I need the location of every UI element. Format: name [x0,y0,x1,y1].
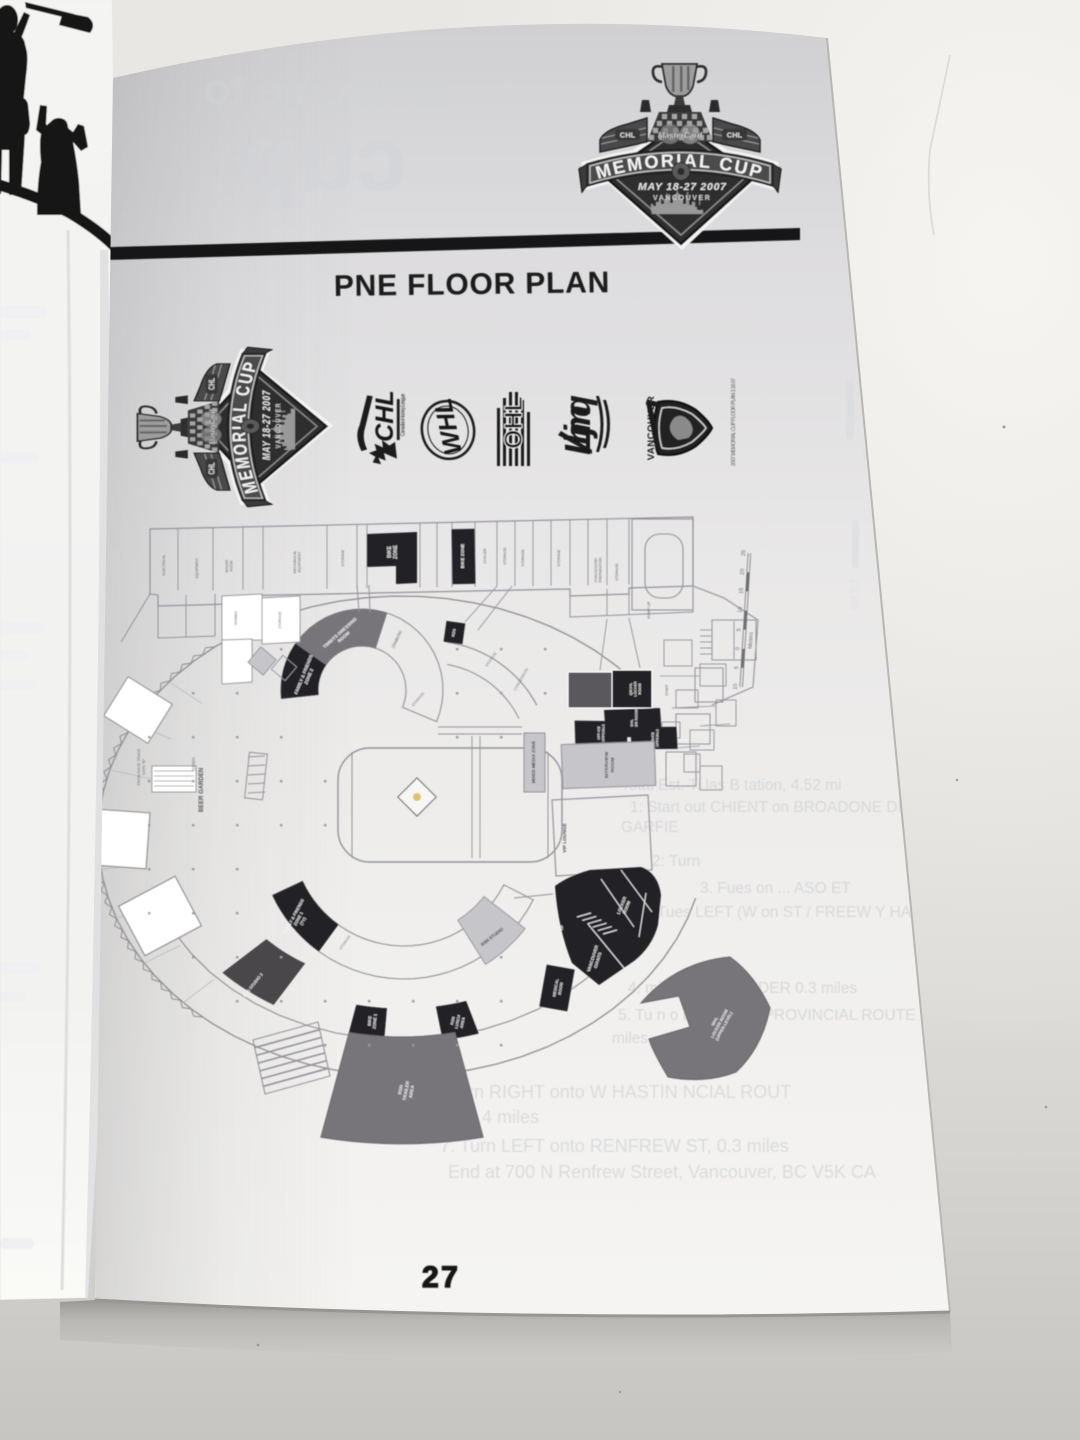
svg-text:OHL: OHL [500,396,528,449]
svg-text:STORAGE: STORAGE [341,549,345,567]
svg-text:Lhjmq: Lhjmq [557,395,598,455]
svg-text:ELECTRICAL: ELECTRICAL [162,554,166,575]
svg-text:5. Tu n o BURRARD P: 5. Tu n o BURRARD PROVINCIAL ROUTE 7A, 0… [618,1007,960,1024]
svg-text:STORAGE: STORAGE [521,549,525,567]
svg-text:STORAGE: STORAGE [557,549,561,567]
svg-text:STAFF: STAFF [665,683,669,695]
svg-text:CHL: CHL [371,390,399,442]
svg-text:STORAGE: STORAGE [278,611,282,629]
svg-text:on ST: on ST [847,577,862,610]
svg-text:25: 25 [741,550,747,556]
svg-text:BEER GARDEN: BEER GARDEN [199,768,205,812]
svg-text:Welcome to: Welcome to [204,65,450,114]
svg-text:3. Fues on ... ASO ET: 3. Fues on ... ASO ET [700,880,851,897]
svg-text:10: 10 [737,607,743,613]
svg-text:VIP LOUNGE: VIP LOUNGE [562,822,568,852]
svg-text:RAMP UP: RAMP UP [647,601,651,619]
svg-text:0: 0 [735,647,741,650]
svg-text:MIXED MEDIA ZONE: MIXED MEDIA ZONE [531,741,536,784]
svg-text:STORAGE: STORAGE [503,547,507,565]
svg-text:BIKEZONE: BIKEZONE [387,544,399,559]
svg-text:5: 5 [734,666,740,669]
svg-text:End at 700 N Renfrew Street, V: End at 700 N Renfrew Street, Vancouver, … [448,1162,876,1182]
svg-text:7. Turn LEFT onto RENFREW ST,: 7. Turn LEFT onto RENFREW ST, 0.3 miles [440,1136,789,1156]
svg-text:BIKE ZONE: BIKE ZONE [460,544,465,569]
svg-text:2: Turn: 2: Turn [652,853,700,870]
svg-text:CHILLER: CHILLER [483,548,487,564]
svg-text:10: 10 [733,683,739,689]
svg-text:27: 27 [422,1261,460,1294]
svg-text:15: 15 [739,588,745,594]
svg-text:DOWN: DOWN [191,757,196,770]
svg-text:6. Turn RIGHT onto W HASTIN: 6. Turn RIGHT onto W HASTIN NCIAL ROUT [428,1082,791,1102]
svg-text:cup: cup [243,108,407,210]
svg-text:PNE FLOOR PLAN: PNE FLOOR PLAN [334,266,611,303]
svg-text:WOMEN: WOMEN [234,611,238,626]
svg-text:miles: miles [612,1030,648,1047]
svg-text:Meters: Meters [748,632,755,649]
svg-text:20: 20 [740,569,746,575]
svg-text:Canadian Hockey League: Canadian Hockey League [400,393,406,436]
svg-text:STORAGE: STORAGE [615,563,619,581]
svg-text:2007 MEMORIAL CUP FLOOR PLAN 3: 2007 MEMORIAL CUP FLOOR PLAN 3.16.07 [731,378,737,466]
svg-text:EQUIPMENT: EQUIPMENT [195,558,199,578]
svg-text:5: 5 [736,628,742,631]
svg-text:MECHANICALEQUIPMENT: MECHANICALEQUIPMENT [293,550,302,573]
svg-text:CONCESSIONPREPARATION: CONCESSIONPREPARATION [594,557,603,583]
svg-text:BOILERROOM: BOILERROOM [225,559,234,572]
